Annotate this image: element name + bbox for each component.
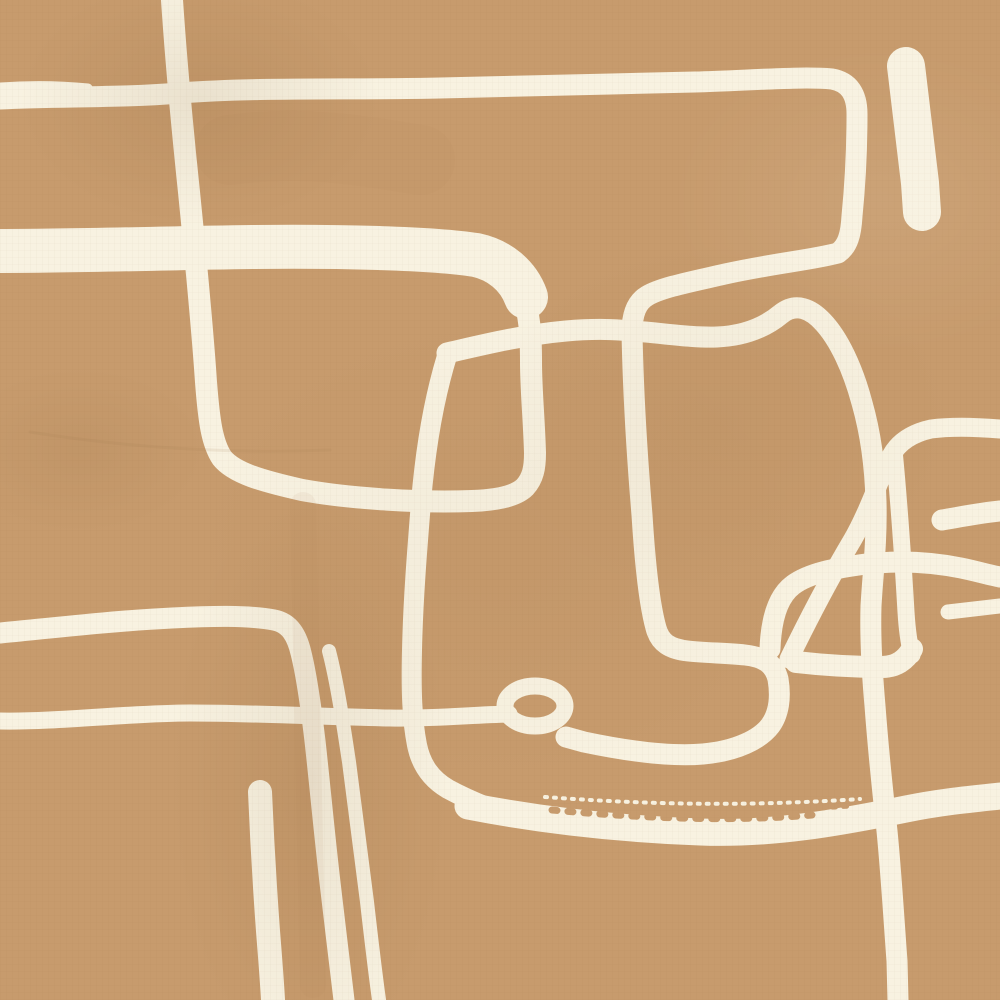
painting-canvas [0,0,1000,1000]
top-right-thick-bar [906,66,922,212]
loop-tail-left-line [0,713,509,721]
right-edge-bar-upper [942,511,1000,520]
right-short-connector [894,450,912,655]
short-bottom-vertical-bar [260,792,273,1000]
right-tail-bar [796,649,912,667]
abstract-line-painting [0,0,1000,1000]
shadow-streak-vertical [303,505,313,985]
square-left-edge [412,356,487,807]
shadow-patch-topleft [230,146,420,160]
thick-upper-band [0,247,526,297]
scribble-band [468,796,1000,832]
lower-left-band-corner-line [0,616,344,1000]
right-edge-bar-lower [948,606,1000,612]
shadow-crack-left [30,432,330,451]
